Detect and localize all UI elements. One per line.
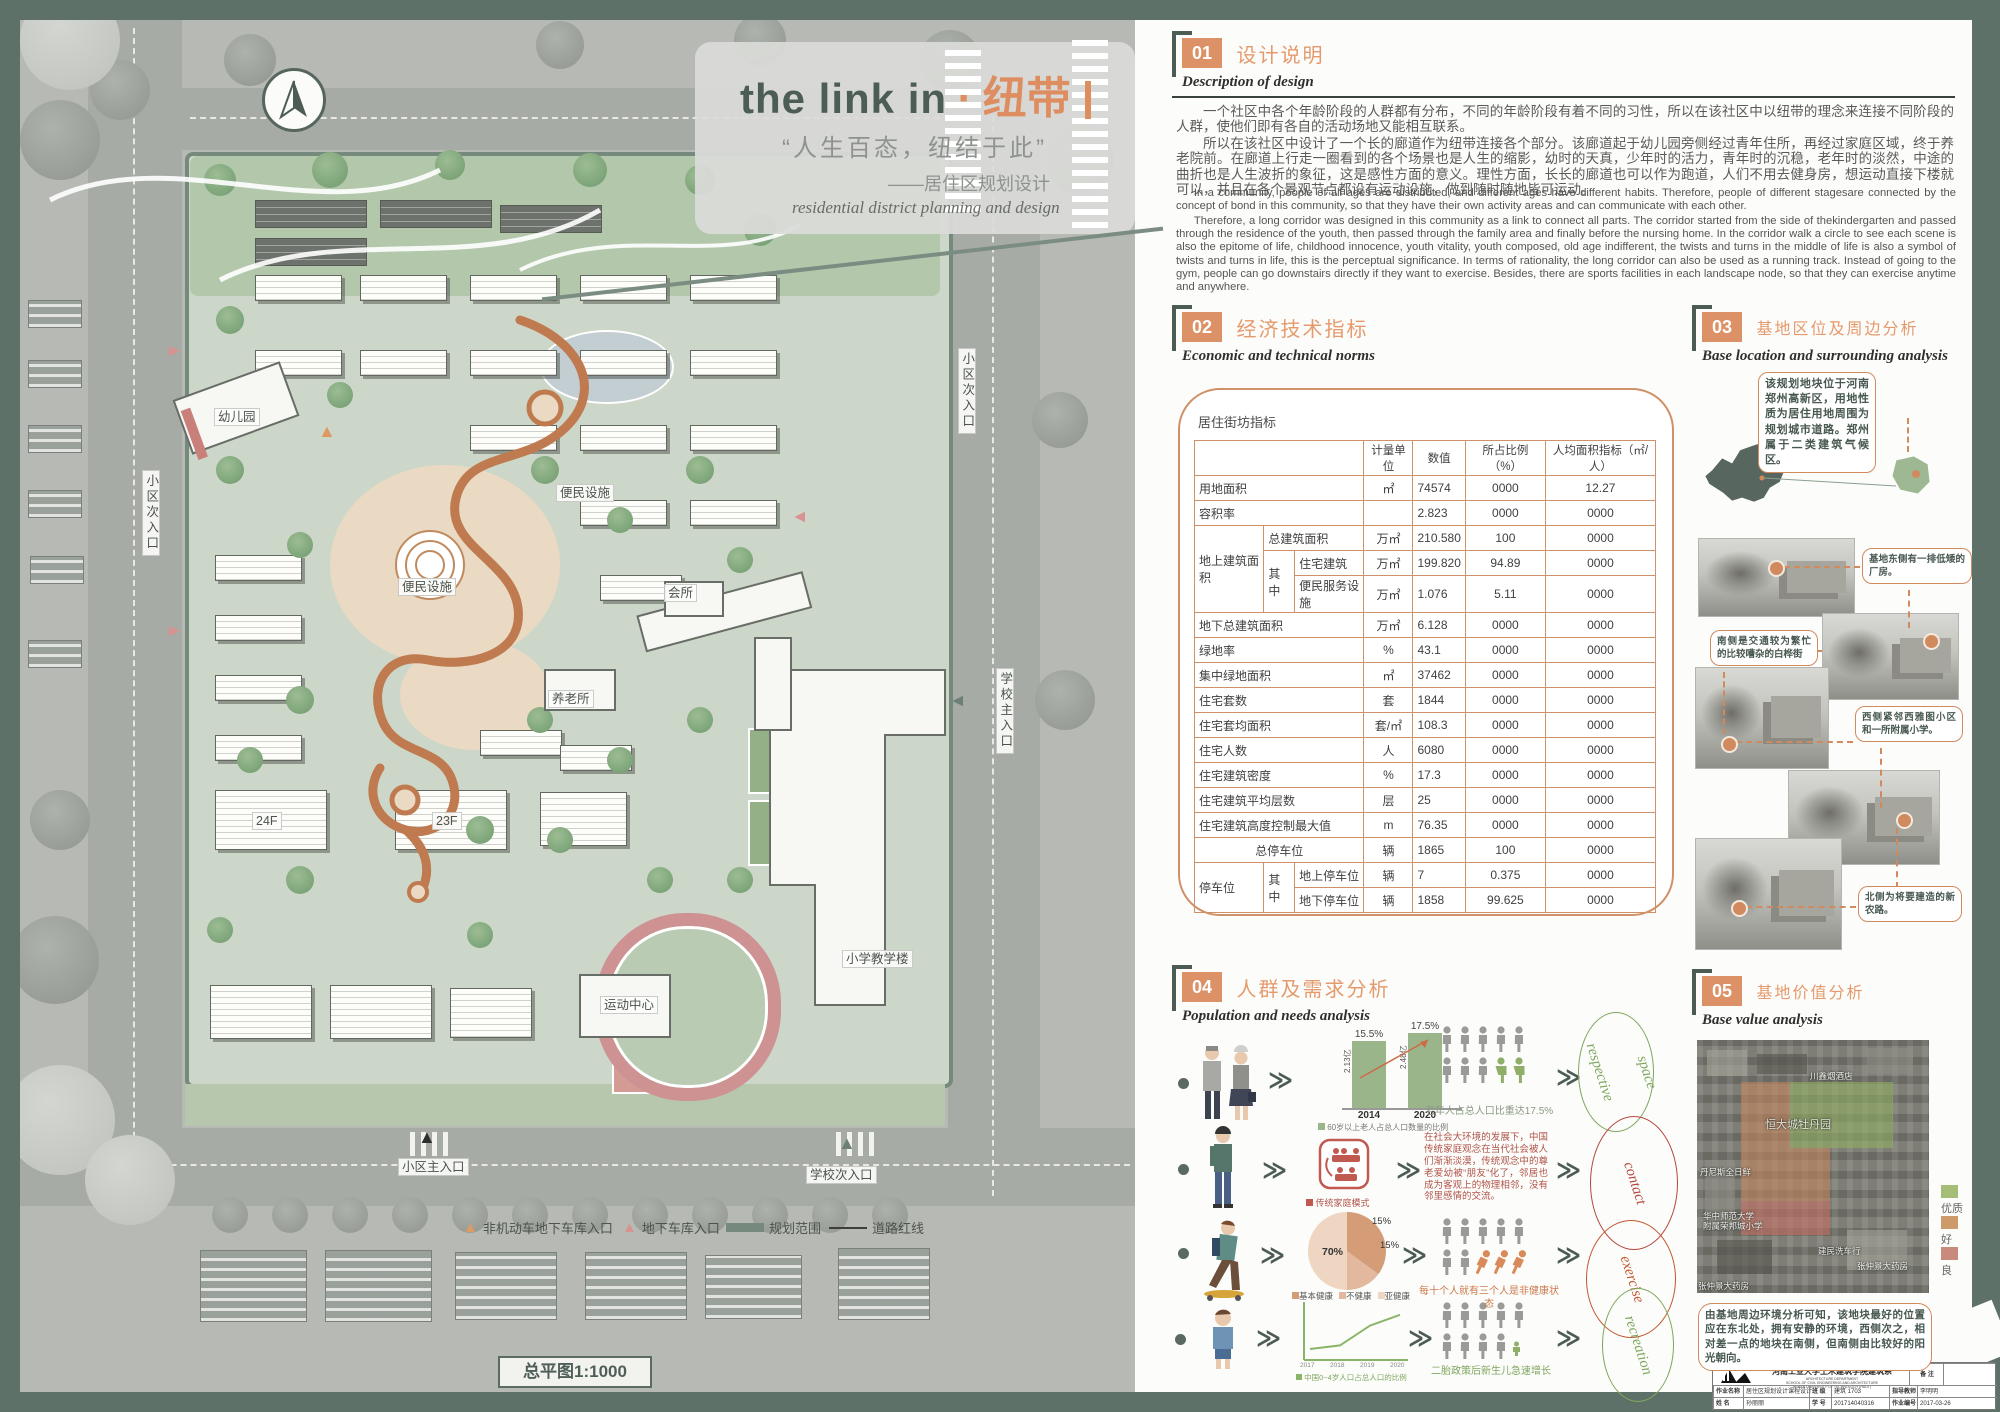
person-icon (1476, 1333, 1491, 1364)
entrance-triangle-icon: ▲ (418, 1128, 436, 1146)
table-cell: 便民服务设施 (1295, 576, 1364, 613)
figure-elderly-couple (1196, 1040, 1258, 1133)
row-bullet-icon (1178, 1164, 1189, 1175)
person-icon (1476, 1026, 1491, 1057)
plan-legend-item: 规划范围 (726, 1218, 821, 1237)
remark-cell (1943, 1363, 1995, 1386)
satellite-block (1867, 1048, 1913, 1074)
table-cell: 0000 (1545, 713, 1655, 738)
table-cell: 0000 (1465, 713, 1545, 738)
table-row: 集中绿地面积㎡3746200000000 (1195, 663, 1656, 688)
table-cell: 0000 (1465, 476, 1545, 501)
triangle-pink-icon: ▲ (622, 1219, 637, 1236)
table-cell: 0000 (1545, 688, 1655, 713)
chevron-right-icon: ≫ (1256, 1324, 1281, 1352)
chevron-right-icon: ≫ (1402, 1241, 1427, 1269)
table-cell: 万㎡ (1364, 576, 1413, 613)
value-legend-swatch (1941, 1216, 1958, 1229)
table-cell: 层 (1364, 788, 1413, 813)
value-zone-orange (1741, 1082, 1790, 1201)
value-analysis-caption: 由基地周边环境分析可知，该地块最好的位置应在东北处，拥有安静的环境，西侧次之，相… (1698, 1303, 1932, 1371)
table-cell: 0000 (1545, 663, 1655, 688)
satellite-image: 川鑫烟酒店恒大城牡丹园丹尼斯全日鲜华中师范大学附属荣邦城小学建民洗车行张仲景大药… (1697, 1040, 1929, 1293)
table-cell: 总建筑面积 (1264, 526, 1364, 551)
site-photo (1822, 613, 1959, 700)
table-cell: 1858 (1413, 888, 1465, 913)
table-row: 绿地率%43.100000000 (1195, 638, 1656, 663)
table-cell: 43.1 (1413, 638, 1465, 663)
table-cell: 0000 (1465, 813, 1545, 838)
table-cell: 万㎡ (1364, 551, 1413, 576)
table-cell: 集中绿地面积 (1195, 663, 1364, 688)
table-cell: 用地面积 (1195, 476, 1364, 501)
person-icon (1512, 1057, 1527, 1088)
section-title-en: Base value analysis (1702, 1012, 1864, 1029)
callout-connector (1746, 906, 1856, 908)
table-row: 住宅建筑高度控制最大值m76.3500000000 (1195, 813, 1656, 838)
section-title-en: Base location and surrounding analysis (1702, 348, 1948, 365)
table-cell: 1865 (1413, 838, 1465, 863)
person-icon (1440, 1026, 1455, 1057)
pie-label: 70% (1322, 1246, 1343, 1258)
line-x-label: 2020 (1390, 1362, 1404, 1369)
section-title-cn: 经济技术指标 (1236, 313, 1368, 342)
satellite-label: 丹尼斯全日鲜 (1700, 1166, 1751, 1178)
title-sep: · (957, 74, 972, 123)
table-cell: 0.375 (1465, 863, 1545, 888)
bar-x-label: 2014 (1346, 1110, 1392, 1121)
table-row: 住宅建筑密度%17.300000000 (1195, 763, 1656, 788)
line-x-label: 2017 (1300, 1362, 1314, 1369)
titleblock-key: 作业编号 (1889, 1397, 1920, 1410)
table-cell: 7 (1413, 863, 1465, 888)
satellite-block (1717, 1240, 1772, 1274)
plan-label-tower-24f: 24F (252, 812, 282, 830)
callout-connector (1896, 828, 1898, 888)
table-cell: 0000 (1465, 638, 1545, 663)
section-3-header: 03 基地区位及周边分析 Base location and surroundi… (1702, 312, 1948, 365)
table-cell: 0000 (1465, 663, 1545, 688)
header-rule (1172, 96, 1955, 98)
north-compass-icon (262, 68, 326, 132)
chevron-right-icon: ≫ (1556, 1324, 1581, 1352)
table-cell: 地上建筑面积 (1195, 526, 1264, 613)
table-cell: 6.128 (1413, 613, 1465, 638)
table-cell: 套/㎡ (1364, 713, 1413, 738)
callout-connector (1880, 748, 1882, 808)
section-title-cn: 基地价值分析 (1756, 979, 1864, 1003)
range-bar-icon (726, 1223, 764, 1232)
photo-callout: 北侧为将要建造的新农路。 (1858, 886, 1962, 922)
map-connector (1907, 418, 1909, 452)
table-caption: 居住街坊指标 (1198, 412, 1276, 431)
person-icon (1458, 1057, 1473, 1088)
table-cell: 17.3 (1413, 763, 1465, 788)
table-cell: 12.27 (1545, 476, 1655, 501)
elderly-caption: 老年人占总人口比重达17.5% (1424, 1106, 1554, 1119)
title-quote: “人生百态，纽结于此” (782, 128, 1047, 163)
chevron-right-icon: ≫ (1260, 1241, 1285, 1269)
table-cell: 0000 (1545, 526, 1655, 551)
entrance-triangle-icon: ▲ (318, 422, 336, 440)
table-cell: 1.076 (1413, 576, 1465, 613)
table-row: 用地面积㎡74574000012.27 (1195, 476, 1656, 501)
table-cell: 6080 (1413, 738, 1465, 763)
row-bullet-icon (1178, 1078, 1189, 1089)
family-text: 在社会大环境的发展下，中国传统家庭观念在当代社会被人们渐渐淡漠，传统观念中的尊老… (1424, 1132, 1548, 1203)
design-text-en-2: Therefore, a long corridor was designed … (1176, 215, 1956, 294)
family-icon-legend: 传统家庭模式 (1306, 1196, 1370, 1209)
person-icon (1440, 1333, 1455, 1364)
table-cell: 辆 (1364, 838, 1413, 863)
row-bullet-icon (1178, 1248, 1189, 1259)
table-cell: 0000 (1465, 688, 1545, 713)
birth-caption: 二胎政策后新生儿急速增长 (1418, 1366, 1564, 1379)
chevron-right-icon: ≫ (1556, 1241, 1581, 1269)
bar-annotation: 2.13亿 (1342, 1049, 1353, 1073)
plan-label-sports-center: 运动中心 (600, 996, 658, 1014)
person-icon (1458, 1249, 1473, 1280)
table-cell: 住宅人数 (1195, 738, 1364, 763)
table-cell: 199.820 (1413, 551, 1465, 576)
table-cell: 0000 (1545, 863, 1655, 888)
section-5-header: 05 基地价值分析 Base value analysis (1702, 976, 1864, 1029)
table-cell: 76.35 (1413, 813, 1465, 838)
plan-label-main-entry: 小区主入口 (398, 1158, 469, 1176)
person-icon (1494, 1026, 1509, 1057)
titleblock-value: 2017-03-26 (1917, 1397, 1997, 1410)
table-cell: 210.580 (1413, 526, 1465, 551)
table-cell: 万㎡ (1364, 526, 1413, 551)
section-title-en: Economic and technical norms (1182, 348, 1375, 365)
person-icon (1512, 1218, 1527, 1249)
table-cell: m (1364, 813, 1413, 838)
person-icon (1494, 1057, 1509, 1088)
callout-connector (1736, 741, 1853, 743)
table-cell: 住宅建筑平均层数 (1195, 788, 1364, 813)
line-x-label: 2019 (1360, 1362, 1374, 1369)
school-wing (755, 638, 791, 730)
table-row: 容积率2.82300000000 (1195, 501, 1656, 526)
person-icon (1512, 1249, 1527, 1280)
table-cell: 100 (1465, 838, 1545, 863)
plan-label-convenience-1: 便民设施 (556, 484, 614, 502)
pie-label: 15% (1380, 1240, 1399, 1251)
chevron-right-icon: ≫ (1396, 1156, 1421, 1184)
title-bar-mark (1085, 81, 1091, 119)
corner-bracket-icon (1692, 305, 1712, 351)
callout-dot-icon (1721, 736, 1738, 753)
table-cell: % (1364, 763, 1413, 788)
plan-label-side-entry-top: 小区次入口 (958, 348, 976, 434)
person-icon (1494, 1249, 1509, 1280)
plan-label-convenience-2: 便民设施 (398, 578, 456, 596)
table-cell: 人 (1364, 738, 1413, 763)
table-cell: 辆 (1364, 888, 1413, 913)
henan-map (1892, 456, 1930, 494)
table-cell: 0000 (1465, 613, 1545, 638)
person-icon (1494, 1218, 1509, 1249)
chevron-right-icon: ≫ (1556, 1156, 1581, 1184)
callout-dot-icon (1896, 812, 1913, 829)
location-callout: 该规划地块位于河南郑州高新区，用地性质为居住用地周围为规划城市道路。郑州属于二类… (1758, 372, 1876, 473)
subtitle-en: residential district planning and design (792, 198, 1060, 218)
section-title-cn: 设计说明 (1236, 39, 1324, 68)
pictogram-grid (1440, 1026, 1532, 1088)
person-icon (1512, 1026, 1527, 1057)
table-row: 地下总建筑面积万㎡6.12800000000 (1195, 613, 1656, 638)
person-icon (1440, 1057, 1455, 1088)
table-cell: % (1364, 638, 1413, 663)
table-cell: 0000 (1545, 788, 1655, 813)
table-cell: 停车位 (1195, 863, 1264, 913)
table-cell: 0000 (1545, 576, 1655, 613)
corner-bracket-icon (1172, 965, 1192, 1011)
photo-callout: 南侧是交通较为繁忙的比较嘈杂的白桦街 (1710, 630, 1818, 666)
figure-young-man (1202, 1126, 1244, 1217)
table-cell: 0000 (1465, 501, 1545, 526)
design-text-en-1: In a community, people of all ages are d… (1176, 187, 1956, 213)
triangle-orange-icon: ▲ (463, 1219, 478, 1236)
table-header-cell: 数值 (1413, 441, 1465, 476)
table-cell: 绿地率 (1195, 638, 1364, 663)
satellite-block (1757, 1054, 1807, 1074)
corridor-node (409, 883, 427, 901)
table-cell (1364, 501, 1413, 526)
plan-label-school-side-entry: 学校次入口 (806, 1166, 877, 1184)
callout-dot-icon (1731, 900, 1748, 917)
table-cell: 0000 (1545, 613, 1655, 638)
table-cell: 容积率 (1195, 501, 1364, 526)
callout-dot-icon (1923, 633, 1940, 650)
person-icon (1458, 1218, 1473, 1249)
value-zone-orange (1790, 1148, 1830, 1201)
line-chart: 2017201820192020 中国0~4岁人口占总人口的比例 (1296, 1298, 1412, 1384)
person-icon (1476, 1218, 1491, 1249)
table-cell: 0000 (1545, 501, 1655, 526)
table-cell: 25 (1413, 788, 1465, 813)
table-cell: 地上停车位 (1295, 863, 1364, 888)
table-cell: 0000 (1465, 788, 1545, 813)
titleblock-value: 201714040316 (1831, 1397, 1892, 1410)
table-cell: 住宅建筑高度控制最大值 (1195, 813, 1364, 838)
section-1-header: 01 设计说明 Description of design (1182, 38, 1324, 91)
entrance-triangle-icon: ▲ (838, 1134, 856, 1152)
table-cell: 住宅套均面积 (1195, 713, 1364, 738)
pictogram-grid (1440, 1302, 1532, 1364)
value-legend-label: 好 (1941, 1231, 1952, 1247)
chevron-right-icon: ≫ (1268, 1066, 1293, 1094)
pictogram-row (1440, 1218, 1532, 1249)
title-en: the link in (740, 75, 947, 122)
keyword-ellipse: respectivespace (1578, 1012, 1654, 1132)
table-row: 住宅套数套184400000000 (1195, 688, 1656, 713)
satellite-block (1707, 1050, 1747, 1076)
poster-title: the link in · 纽带 (740, 62, 1091, 126)
person-icon (1512, 1333, 1521, 1364)
subtitle-cn: ——居住区规划设计 (888, 170, 1050, 196)
corner-bracket-icon (1172, 31, 1192, 77)
table-cell: ㎡ (1364, 476, 1413, 501)
person-icon (1440, 1218, 1455, 1249)
callout-dot-icon (1768, 560, 1785, 577)
table-cell: 2.823 (1413, 501, 1465, 526)
table-cell: 37462 (1413, 663, 1465, 688)
value-legend-swatch (1941, 1247, 1958, 1260)
table-row: 停车位其中地上停车位辆70.3750000 (1195, 863, 1656, 888)
section-4-header: 04 人群及需求分析 Population and needs analysis (1182, 972, 1390, 1025)
table-row: 地上建筑面积总建筑面积万㎡210.5801000000 (1195, 526, 1656, 551)
section-2-header: 02 经济技术指标 Economic and technical norms (1182, 312, 1375, 365)
site-photo (1695, 838, 1842, 950)
satellite-label: 恒大城牡丹园 (1765, 1116, 1831, 1132)
legend-label: 非机动车地下车库入口 (483, 1218, 613, 1237)
table-cell: 套 (1364, 688, 1413, 713)
table-cell: 总停车位 (1195, 838, 1364, 863)
redline-icon (829, 1227, 867, 1229)
table-row: 其中住宅建筑万㎡199.82094.890000 (1195, 551, 1656, 576)
table-cell: 108.3 (1413, 713, 1465, 738)
figure-child (1200, 1306, 1246, 1377)
value-legend-label: 良 (1941, 1262, 1952, 1278)
table-cell: 0000 (1465, 763, 1545, 788)
callout-connector (1908, 590, 1910, 628)
person-icon (1458, 1333, 1473, 1364)
chevron-right-icon: ≫ (1262, 1156, 1287, 1184)
value-zone-green (1790, 1082, 1893, 1148)
satellite-label: 川鑫烟酒店 (1810, 1070, 1853, 1082)
table-cell: 0000 (1545, 551, 1655, 576)
table-cell: 0000 (1545, 738, 1655, 763)
pictogram-row (1440, 1249, 1532, 1280)
table-cell: 地下总建筑面积 (1195, 613, 1364, 638)
plan-label-club: 会所 (664, 584, 697, 602)
legend-label: 道路红线 (872, 1218, 924, 1237)
line-legend: 中国0~4岁人口占总人口的比例 (1296, 1372, 1407, 1383)
legend-label: 规划范围 (769, 1218, 821, 1237)
figure-walker (1196, 1218, 1252, 1307)
entrance-triangle-icon: ▲ (948, 692, 966, 710)
entrance-triangle-icon: ▲ (166, 622, 184, 640)
section-title-en: Description of design (1182, 74, 1324, 91)
family-icon (1318, 1138, 1370, 1195)
corridor-node (529, 392, 561, 424)
corner-bracket-icon (1172, 305, 1192, 351)
table-cell: 地下停车位 (1295, 888, 1364, 913)
value-legend-swatch (1941, 1185, 1958, 1198)
pie-label: 15% (1372, 1216, 1391, 1227)
plan-label-school-main-entry: 学校主入口 (996, 668, 1014, 754)
section-title-cn: 基地区位及周边分析 (1756, 315, 1918, 339)
callout-connector (1723, 672, 1725, 734)
satellite-label: 张仲景大药房 (1698, 1280, 1749, 1292)
corridor-node (392, 787, 418, 813)
person-icon (1458, 1026, 1473, 1057)
table-cell: ㎡ (1364, 663, 1413, 688)
table-cell: 0000 (1545, 838, 1655, 863)
plan-label-kindergarten: 幼儿园 (214, 408, 260, 426)
table-cell: 0000 (1545, 638, 1655, 663)
plan-scale-label: 总平图1:1000 (498, 1356, 652, 1388)
table-cell: 0000 (1465, 738, 1545, 763)
satellite-label: 张仲景大药房 (1857, 1260, 1908, 1272)
line-x-label: 2018 (1330, 1362, 1344, 1369)
table-cell: 其中 (1264, 863, 1295, 913)
health-caption: 每十个人就有三个人是非健康状态 (1416, 1286, 1562, 1311)
corner-bracket-icon (1692, 969, 1712, 1015)
table-cell: 5.11 (1465, 576, 1545, 613)
table-cell: 住宅建筑 (1295, 551, 1364, 576)
table-cell: 0000 (1545, 888, 1655, 913)
table-cell: 住宅套数 (1195, 688, 1364, 713)
table-cell: 0000 (1545, 813, 1655, 838)
section-title-en: Population and needs analysis (1182, 1008, 1390, 1025)
legend-label: 地下车库入口 (642, 1218, 720, 1237)
site-photo (1695, 667, 1829, 769)
poster-root: { "poster": { "title_en": "the link in",… (0, 0, 2000, 1412)
table-cell: 100 (1465, 526, 1545, 551)
callout-connector (1784, 566, 1860, 568)
table-cell: 其中 (1264, 551, 1295, 613)
site-photo (1698, 538, 1855, 617)
pictogram-row (1440, 1057, 1532, 1088)
table-cell: 万㎡ (1364, 613, 1413, 638)
plan-label-side-entry-left: 小区次入口 (142, 470, 160, 556)
plan-legend-item: 道路红线 (829, 1218, 924, 1237)
title-cn: 纽带 (983, 74, 1071, 123)
pictogram-row (1440, 1333, 1532, 1364)
table-row: 住宅建筑平均层数层2500000000 (1195, 788, 1656, 813)
plan-label-tower-23f: 23F (432, 812, 462, 830)
person-icon (1476, 1057, 1491, 1088)
section-title-cn: 人群及需求分析 (1236, 973, 1390, 1002)
photo-callout: 西侧紧邻西雅图小区和一所附属小学。 (1855, 706, 1963, 742)
table-header-cell (1195, 441, 1364, 476)
person-icon (1476, 1249, 1491, 1280)
table-cell: 99.625 (1465, 888, 1545, 913)
titleblock-key: 姓 名 (1713, 1397, 1746, 1410)
table-header-cell: 所占比例（%） (1465, 441, 1545, 476)
value-legend-label: 优质 (1941, 1200, 1963, 1216)
table-row: 住宅人数人608000000000 (1195, 738, 1656, 763)
photo-callout: 基地东侧有一排低矮的厂房。 (1862, 548, 1972, 584)
entrance-triangle-icon: ▲ (166, 342, 184, 360)
table-cell: 住宅建筑密度 (1195, 763, 1364, 788)
design-text-cn-1: 一个社区中各个年龄阶段的人群都有分布，不同的年龄阶段有着不同的习性，所以在该社区… (1176, 104, 1954, 135)
norms-table: 计量单位数值所占比例（%）人均面积指标（㎡/人）用地面积㎡74574000012… (1194, 440, 1656, 913)
table-cell: 74574 (1413, 476, 1465, 501)
row-bullet-icon (1175, 1334, 1186, 1345)
person-icon (1494, 1333, 1509, 1364)
satellite-label: 附属荣邦城小学 (1703, 1220, 1763, 1232)
entrance-triangle-icon: ▲ (790, 508, 808, 526)
table-cell: 辆 (1364, 863, 1413, 888)
pictogram-grid (1440, 1218, 1532, 1280)
plan-legend-item: ▲地下车库入口 (622, 1218, 720, 1237)
plan-label-elderly-home: 养老所 (548, 690, 594, 708)
plan-label-school-building: 小学教学楼 (842, 950, 913, 968)
table-cell: 94.89 (1465, 551, 1545, 576)
plan-legend-item: ▲非机动车地下车库入口 (463, 1218, 613, 1237)
satellite-label: 建民洗车行 (1818, 1245, 1861, 1257)
table-header-cell: 人均面积指标（㎡/人） (1545, 441, 1655, 476)
pictogram-row (1440, 1026, 1532, 1057)
table-cell: 1844 (1413, 688, 1465, 713)
person-icon (1440, 1249, 1455, 1280)
table-row: 总停车位辆18651000000 (1195, 838, 1656, 863)
table-header-cell: 计量单位 (1364, 441, 1413, 476)
keyword-ellipse: recreation (1602, 1288, 1674, 1402)
